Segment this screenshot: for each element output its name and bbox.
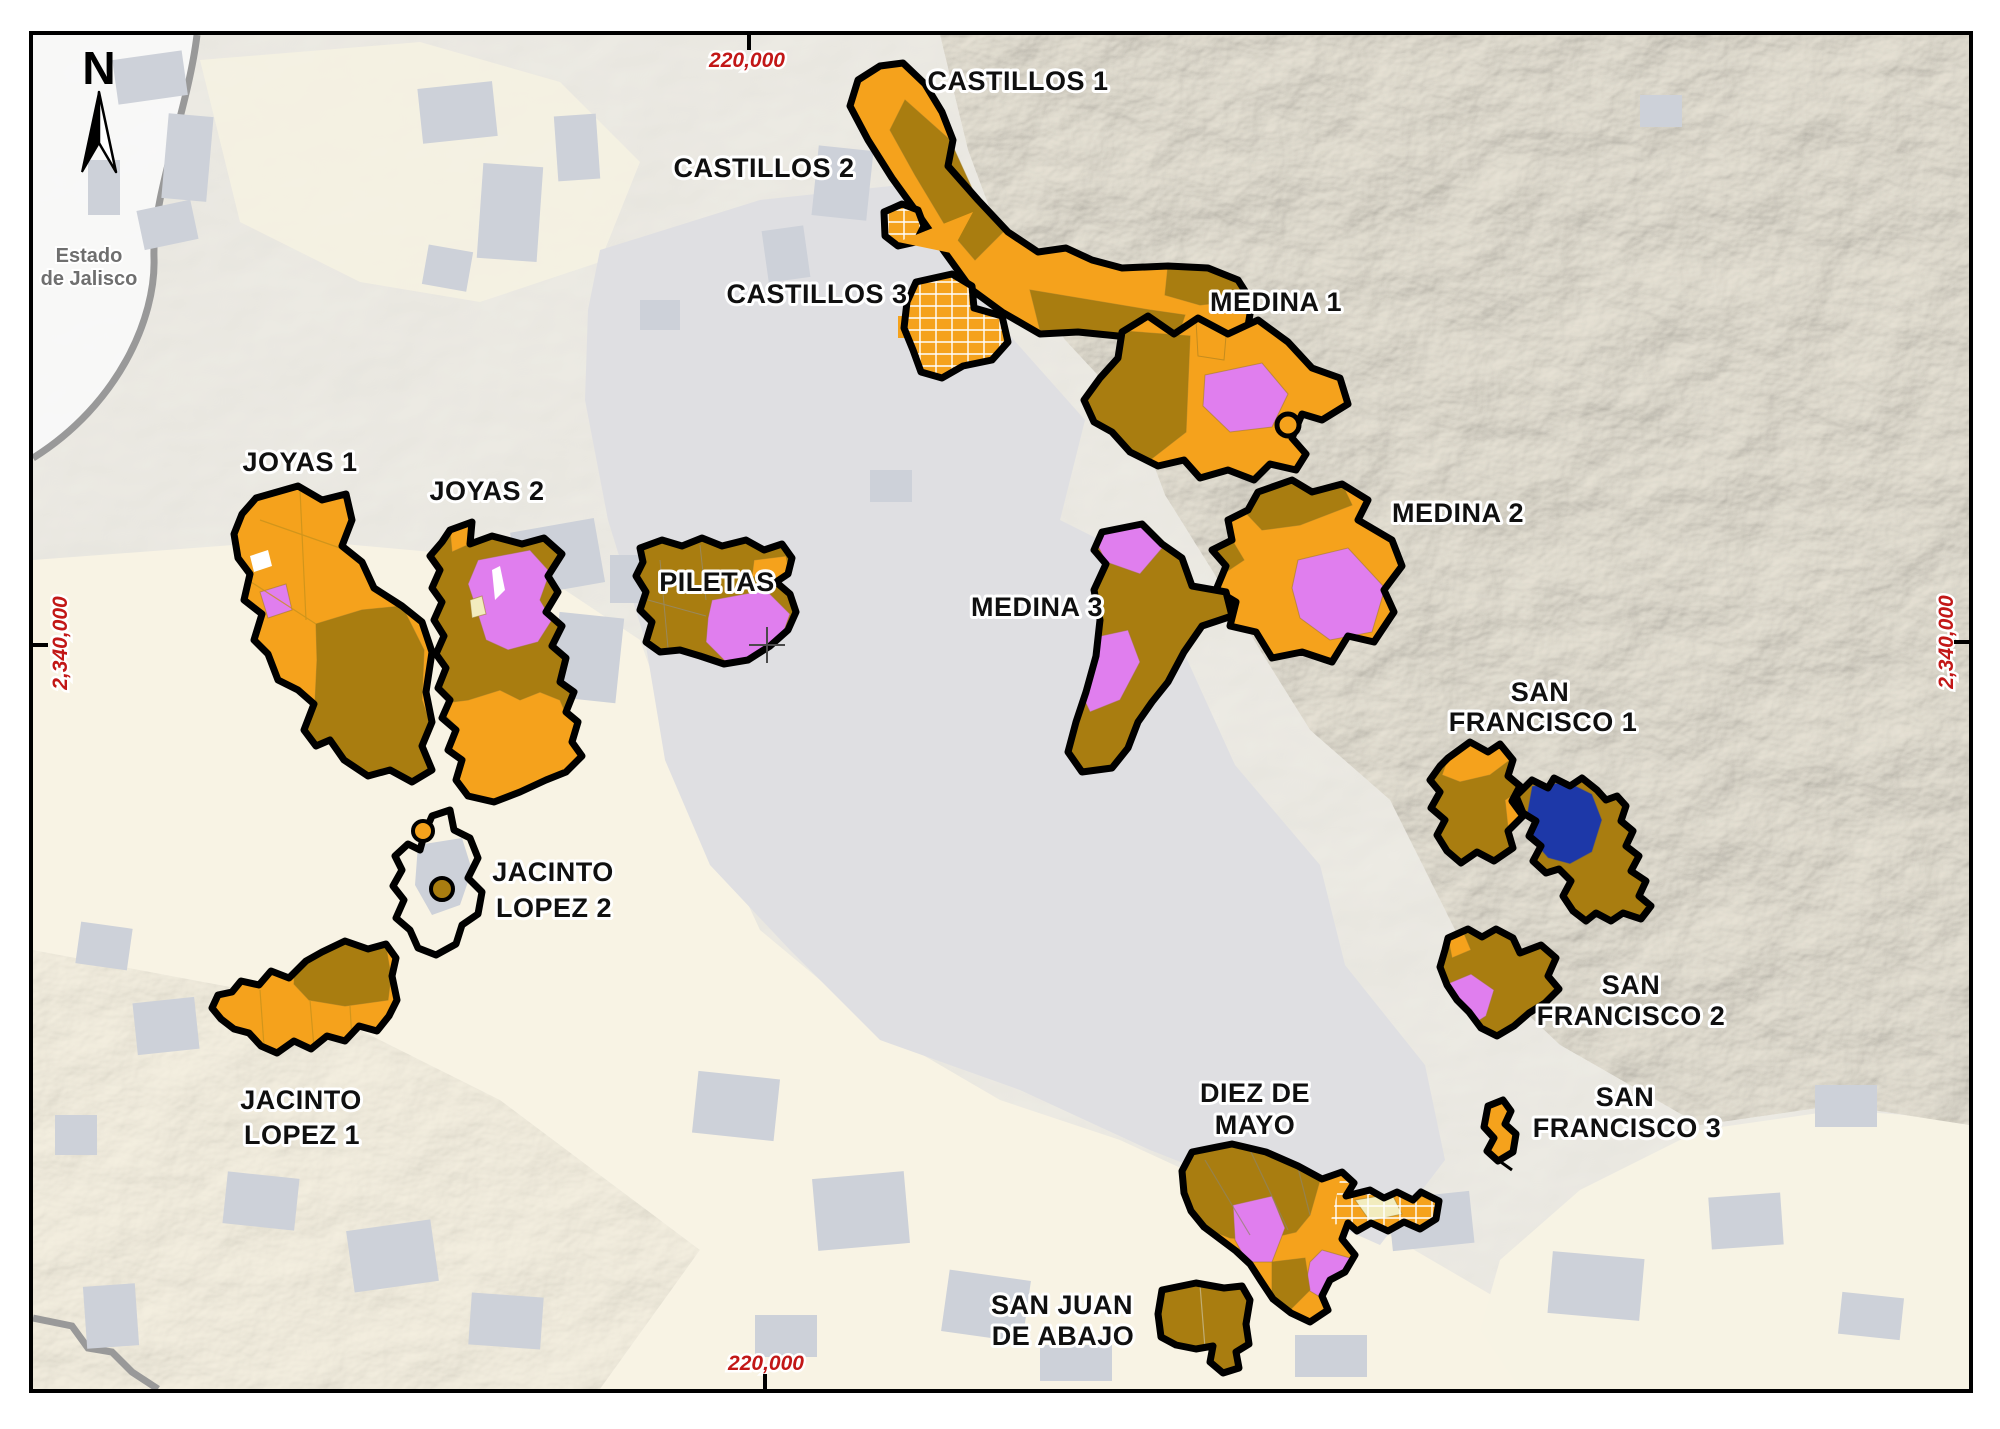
label-castillos-2: CASTILLOS 2	[673, 153, 854, 183]
label-san-francisco-3-line1: SAN	[1596, 1082, 1655, 1112]
label-castillos-1: CASTILLOS 1	[927, 66, 1108, 96]
jacinto-lopez-2-circle-brown	[431, 878, 453, 900]
label-medina-1: MEDINA 1	[1210, 287, 1342, 317]
label-medina-2: MEDINA 2	[1392, 498, 1524, 528]
medina-1-circle-parcel	[1277, 414, 1299, 436]
label-castillos-3: CASTILLOS 3	[726, 279, 907, 309]
label-jacinto-lopez-2-line2: LOPEZ 2	[496, 893, 612, 923]
north-arrow-label: N	[82, 42, 115, 94]
map-canvas: CASTILLOS 1 CASTILLOS 2 CASTILLOS 3 MEDI…	[0, 0, 2000, 1429]
label-san-francisco-2-line2: FRANCISCO 2	[1537, 1001, 1726, 1031]
label-jacinto-lopez-1-line1: JACINTO	[240, 1085, 362, 1115]
label-joyas-2: JOYAS 2	[429, 476, 544, 506]
label-diez-de-mayo-line2: MAYO	[1215, 1110, 1296, 1140]
jacinto-lopez-2-circle-orange	[413, 821, 433, 841]
grid-label-left: 2,340,000	[49, 596, 72, 691]
map-screenshot: CASTILLOS 1 CASTILLOS 2 CASTILLOS 3 MEDI…	[0, 0, 2000, 1429]
label-piletas: PILETAS	[659, 567, 775, 597]
label-san-francisco-1-line1: SAN	[1511, 677, 1570, 707]
label-san-juan-de-abajo-line1: SAN JUAN	[991, 1290, 1133, 1320]
label-jacinto-lopez-1-line2: LOPEZ 1	[244, 1120, 360, 1150]
estado-label-line2: de Jalisco	[41, 268, 138, 290]
grid-label-bottom: 220,000	[727, 1352, 804, 1375]
label-jacinto-lopez-2-line1: JACINTO	[492, 857, 614, 887]
label-medina-3: MEDINA 3	[971, 592, 1103, 622]
label-san-francisco-1-line2: FRANCISCO 1	[1449, 707, 1638, 737]
grid-label-top: 220,000	[708, 49, 785, 72]
basemap	[33, 35, 1969, 1389]
label-san-francisco-3-line2: FRANCISCO 3	[1533, 1113, 1722, 1143]
estado-label-line1: Estado	[56, 245, 123, 267]
label-san-francisco-2-line1: SAN	[1602, 970, 1661, 1000]
label-san-juan-de-abajo-line2: DE ABAJO	[992, 1321, 1135, 1351]
label-joyas-1: JOYAS 1	[242, 447, 357, 477]
label-diez-de-mayo-line1: DIEZ DE	[1200, 1078, 1310, 1108]
